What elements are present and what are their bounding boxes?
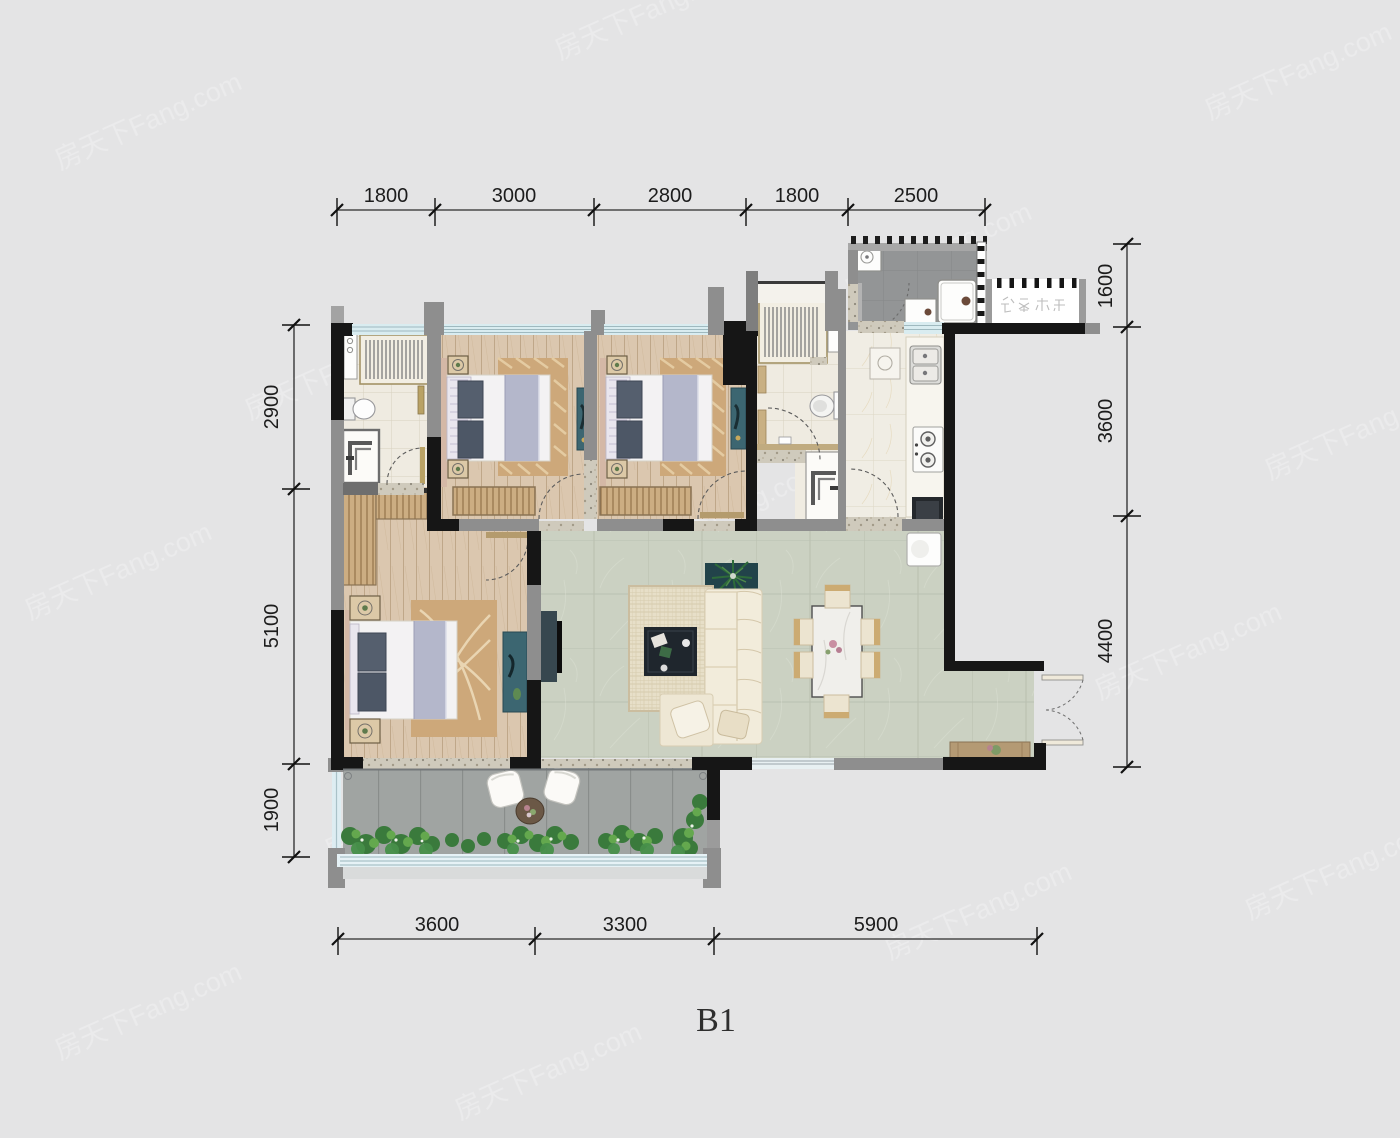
- svg-text:5100: 5100: [261, 604, 283, 649]
- svg-text:3300: 3300: [603, 914, 648, 936]
- svg-text:3600: 3600: [415, 914, 460, 936]
- svg-text:2900: 2900: [261, 385, 283, 430]
- svg-text:5900: 5900: [854, 914, 899, 936]
- svg-text:1800: 1800: [775, 185, 820, 207]
- svg-text:1800: 1800: [364, 185, 409, 207]
- svg-text:4400: 4400: [1095, 619, 1117, 664]
- svg-text:B1: B1: [696, 1002, 736, 1039]
- svg-text:1900: 1900: [261, 788, 283, 833]
- svg-text:2500: 2500: [894, 185, 939, 207]
- svg-text:3000: 3000: [492, 185, 537, 207]
- svg-text:1600: 1600: [1095, 264, 1117, 309]
- svg-text:3600: 3600: [1095, 399, 1117, 444]
- svg-text:2800: 2800: [648, 185, 693, 207]
